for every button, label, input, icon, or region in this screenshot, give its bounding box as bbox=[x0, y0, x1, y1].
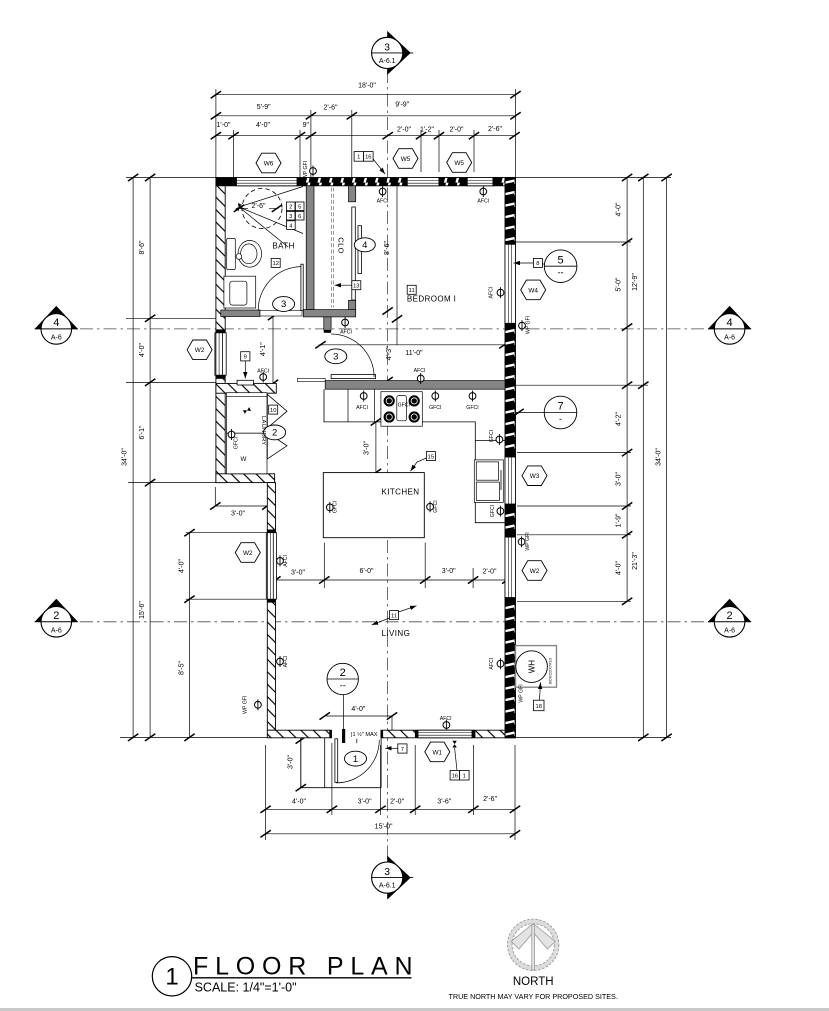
svg-text:A-6.1: A-6.1 bbox=[379, 58, 396, 65]
svg-text:5'-0": 5'-0" bbox=[616, 277, 623, 291]
svg-text:4'-0": 4'-0" bbox=[256, 122, 270, 129]
svg-text:4'-3": 4'-3" bbox=[386, 346, 393, 360]
svg-text:3'-6": 3'-6" bbox=[437, 799, 451, 806]
svg-text:2: 2 bbox=[53, 610, 59, 622]
svg-text:9'-9": 9'-9" bbox=[395, 102, 409, 109]
svg-text:1: 1 bbox=[463, 774, 466, 780]
svg-text:7: 7 bbox=[401, 747, 404, 753]
svg-text:4'-0": 4'-0" bbox=[616, 561, 623, 575]
svg-text:A-6: A-6 bbox=[724, 334, 735, 341]
svg-text:2: 2 bbox=[272, 428, 277, 439]
svg-text:7: 7 bbox=[557, 401, 563, 413]
svg-text:2: 2 bbox=[340, 667, 346, 679]
svg-text:11'-0": 11'-0" bbox=[405, 350, 423, 357]
svg-text:BOXCDX7#10: BOXCDX7#10 bbox=[548, 657, 553, 684]
svg-text:4'-0": 4'-0" bbox=[139, 343, 146, 357]
svg-text:13: 13 bbox=[353, 283, 359, 289]
svg-text:3: 3 bbox=[384, 867, 390, 878]
svg-text:AFCI: AFCI bbox=[356, 405, 368, 411]
svg-text:WP GFI: WP GFI bbox=[303, 161, 309, 179]
svg-text:1'-2": 1'-2" bbox=[420, 127, 434, 134]
svg-text:W4: W4 bbox=[528, 287, 538, 294]
svg-text:3'-0": 3'-0" bbox=[363, 441, 370, 455]
svg-text:11: 11 bbox=[391, 613, 397, 619]
svg-text:3: 3 bbox=[333, 352, 338, 363]
svg-text:GFCI: GFCI bbox=[333, 501, 339, 513]
svg-text:|1 ½" MAX: |1 ½" MAX bbox=[351, 731, 378, 738]
svg-text:AFCI: AFCI bbox=[477, 199, 489, 205]
svg-text:3'-0": 3'-0" bbox=[616, 472, 623, 486]
svg-text:AFCI: AFCI bbox=[377, 199, 389, 205]
svg-text:BEDROOM I: BEDROOM I bbox=[407, 295, 456, 304]
svg-text:18: 18 bbox=[535, 704, 541, 710]
svg-text:8'-5": 8'-5" bbox=[179, 661, 186, 675]
svg-text:WH: WH bbox=[528, 660, 537, 674]
svg-text:3: 3 bbox=[289, 214, 292, 220]
svg-text:W2: W2 bbox=[530, 568, 540, 575]
svg-text:--: -- bbox=[340, 681, 346, 691]
svg-text:GFCI: GFCI bbox=[433, 500, 439, 512]
svg-text:4'-0": 4'-0" bbox=[351, 706, 365, 713]
svg-text:4'-0": 4'-0" bbox=[292, 799, 306, 806]
svg-text:6: 6 bbox=[298, 214, 301, 220]
svg-text:LIVING: LIVING bbox=[382, 629, 411, 638]
svg-text:AFCI: AFCI bbox=[283, 656, 289, 668]
svg-text:W2: W2 bbox=[195, 347, 205, 354]
svg-text:2'-6": 2'-6" bbox=[483, 796, 497, 803]
svg-text:A-6: A-6 bbox=[51, 627, 62, 634]
svg-text:34'-0": 34'-0" bbox=[122, 448, 129, 466]
svg-text:1: 1 bbox=[357, 155, 360, 161]
svg-text:W3: W3 bbox=[530, 473, 540, 480]
svg-text:8'-6": 8'-6" bbox=[139, 240, 146, 254]
svg-text:4'-1": 4'-1" bbox=[260, 342, 267, 356]
svg-text:2'-6": 2'-6" bbox=[252, 203, 266, 210]
svg-text:W2: W2 bbox=[243, 550, 253, 557]
svg-text:6'-0": 6'-0" bbox=[360, 568, 374, 575]
svg-text:3'-0": 3'-0" bbox=[358, 799, 372, 806]
svg-text:W5: W5 bbox=[454, 160, 464, 167]
svg-text:WP GFI: WP GFI bbox=[525, 532, 531, 550]
svg-text:CLO: CLO bbox=[337, 237, 346, 254]
svg-text:AFCI: AFCI bbox=[489, 658, 495, 670]
svg-text:2'-0": 2'-0" bbox=[390, 799, 404, 806]
svg-text:15'-6": 15'-6" bbox=[139, 601, 146, 619]
svg-text:8: 8 bbox=[536, 261, 539, 267]
svg-text:WP GFI: WP GFI bbox=[243, 696, 249, 714]
svg-text:FLOOR PLAN: FLOOR PLAN bbox=[193, 953, 419, 981]
svg-text:W5: W5 bbox=[401, 156, 411, 163]
svg-text:2'-0": 2'-0" bbox=[450, 127, 464, 134]
svg-text:15: 15 bbox=[428, 454, 434, 460]
svg-text:GFCI: GFCI bbox=[489, 430, 495, 442]
svg-text:AFCI: AFCI bbox=[489, 287, 495, 299]
svg-text:SCALE: 1/4"=1'-0": SCALE: 1/4"=1'-0" bbox=[195, 981, 297, 995]
svg-text:AFCI: AFCI bbox=[414, 368, 426, 374]
svg-text:3'-0": 3'-0" bbox=[442, 568, 456, 575]
svg-text:6'-1": 6'-1" bbox=[139, 425, 146, 439]
svg-text:4: 4 bbox=[362, 240, 367, 251]
svg-text:2: 2 bbox=[727, 610, 733, 622]
svg-text:GFCI: GFCI bbox=[234, 437, 240, 449]
svg-text:AFCI: AFCI bbox=[340, 330, 352, 336]
svg-text:3'-0": 3'-0" bbox=[231, 510, 245, 517]
svg-text:GFCI: GFCI bbox=[398, 403, 410, 409]
svg-text:A-6: A-6 bbox=[51, 334, 62, 341]
svg-text:GFCI: GFCI bbox=[490, 505, 496, 517]
svg-text:AFCI: AFCI bbox=[440, 716, 452, 722]
svg-text:W6: W6 bbox=[264, 160, 274, 167]
svg-text:8'-6": 8'-6" bbox=[384, 241, 391, 255]
svg-text:BATH: BATH bbox=[272, 242, 294, 251]
svg-text:1'-9": 1'-9" bbox=[616, 513, 623, 527]
svg-text:A-6: A-6 bbox=[724, 627, 735, 634]
svg-text:4'-0": 4'-0" bbox=[616, 202, 623, 216]
svg-text:16: 16 bbox=[365, 155, 371, 161]
svg-text:-: - bbox=[559, 414, 562, 424]
svg-text:11: 11 bbox=[409, 288, 415, 294]
svg-text:9: 9 bbox=[244, 355, 247, 361]
svg-text:AFCI: AFCI bbox=[283, 555, 289, 567]
svg-text:NORTH: NORTH bbox=[513, 976, 554, 988]
svg-text:LAUNDRY: LAUNDRY bbox=[260, 416, 266, 445]
svg-text:A-6.1: A-6.1 bbox=[379, 883, 396, 890]
svg-text:4'-2": 4'-2" bbox=[616, 412, 623, 426]
svg-text:WP GFI: WP GFI bbox=[525, 316, 531, 334]
svg-text:4'-0": 4'-0" bbox=[179, 559, 186, 573]
svg-text:2'-6": 2'-6" bbox=[324, 105, 338, 112]
svg-text:GFCI: GFCI bbox=[429, 405, 441, 411]
svg-text:4: 4 bbox=[727, 317, 733, 329]
svg-text:2'-6": 2'-6" bbox=[488, 126, 502, 133]
svg-text:1: 1 bbox=[353, 754, 358, 765]
svg-text:3: 3 bbox=[281, 299, 286, 310]
svg-text:W1: W1 bbox=[433, 749, 443, 756]
svg-text:GFCI: GFCI bbox=[466, 405, 478, 411]
svg-text:9": 9" bbox=[303, 122, 310, 129]
svg-text:WP GFI: WP GFI bbox=[519, 684, 525, 702]
svg-text:W: W bbox=[241, 456, 247, 463]
svg-text:2'-0": 2'-0" bbox=[397, 127, 411, 134]
svg-text:3'-0": 3'-0" bbox=[288, 755, 295, 769]
svg-text:2'-0": 2'-0" bbox=[483, 568, 497, 575]
svg-text:--: -- bbox=[558, 268, 564, 278]
svg-text:18'-0": 18'-0" bbox=[358, 83, 376, 90]
svg-text:1'-0": 1'-0" bbox=[217, 122, 231, 129]
svg-text:AFCI: AFCI bbox=[257, 368, 269, 374]
svg-text:16: 16 bbox=[452, 774, 458, 780]
svg-text:34'-0": 34'-0" bbox=[656, 448, 663, 466]
svg-text:5'-9": 5'-9" bbox=[257, 104, 271, 111]
svg-text:3'-0": 3'-0" bbox=[291, 570, 305, 577]
svg-text:2: 2 bbox=[289, 205, 292, 211]
svg-text:12'-9": 12'-9" bbox=[632, 273, 639, 291]
svg-text:TRUE NORTH MAY VARY FOR PROPOS: TRUE NORTH MAY VARY FOR PROPOSED SITES. bbox=[449, 992, 618, 1001]
svg-text:KITCHEN: KITCHEN bbox=[382, 488, 420, 497]
svg-text:5: 5 bbox=[558, 254, 564, 266]
svg-text:3: 3 bbox=[384, 42, 390, 53]
svg-text:21'-3": 21'-3" bbox=[632, 552, 639, 570]
svg-text:5: 5 bbox=[298, 205, 301, 211]
svg-text:10: 10 bbox=[270, 408, 276, 414]
svg-text:4: 4 bbox=[53, 317, 59, 329]
svg-text:15'-0": 15'-0" bbox=[375, 823, 393, 830]
svg-text:1: 1 bbox=[165, 964, 178, 991]
svg-text:12: 12 bbox=[272, 261, 278, 267]
